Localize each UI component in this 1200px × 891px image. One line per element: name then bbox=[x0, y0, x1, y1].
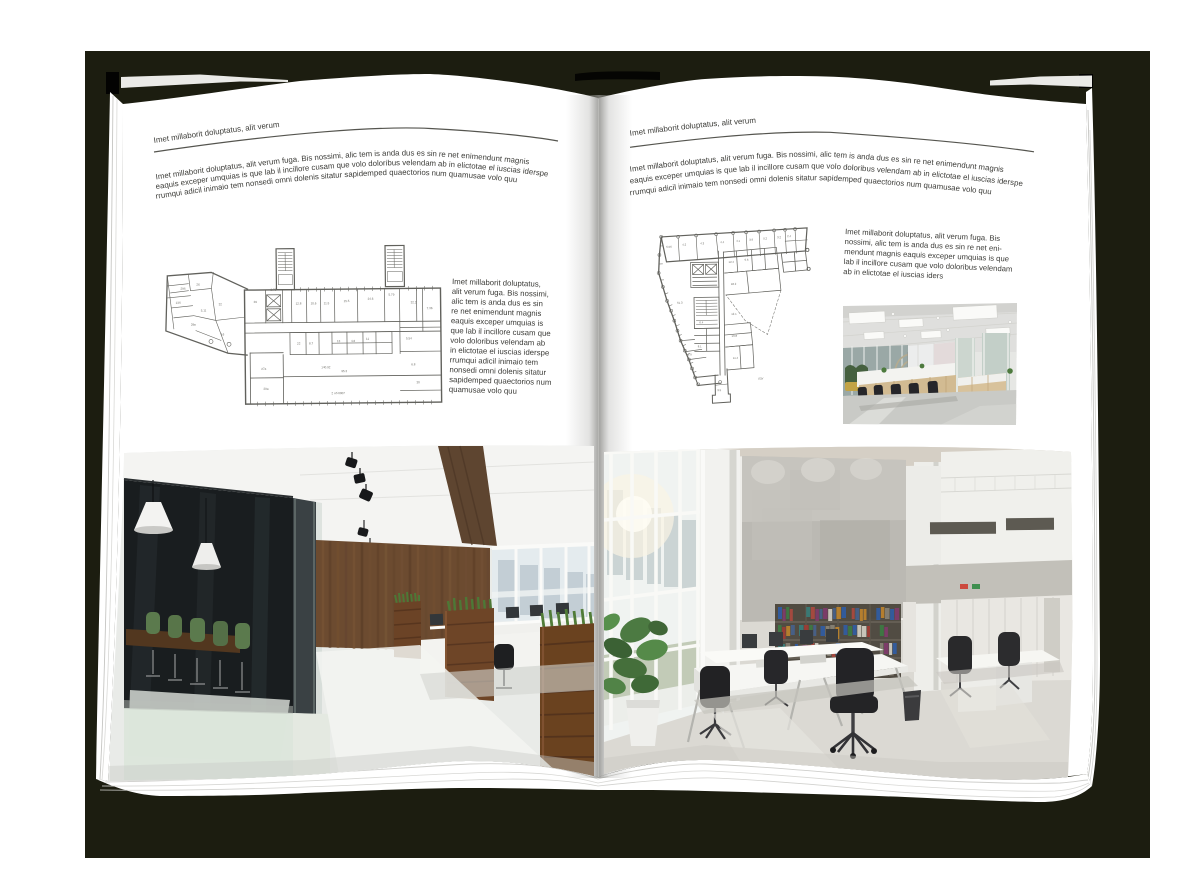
svg-text:5.2: 5.2 bbox=[763, 236, 767, 240]
svg-text:4.2: 4.2 bbox=[682, 243, 686, 247]
svg-text:4.4: 4.4 bbox=[720, 240, 724, 244]
svg-text:22: 22 bbox=[297, 342, 301, 346]
svg-text:95.3: 95.3 bbox=[341, 369, 347, 373]
svg-text:5.54: 5.54 bbox=[406, 336, 412, 340]
svg-text:2.4: 2.4 bbox=[787, 234, 791, 238]
svg-text:11.4: 11.4 bbox=[733, 356, 739, 360]
svg-text:12.8: 12.8 bbox=[296, 302, 302, 306]
svg-text:2 об 0007: 2 об 0007 bbox=[332, 391, 346, 395]
svg-text:5.06: 5.06 bbox=[666, 245, 672, 249]
svg-text:32: 32 bbox=[219, 302, 223, 306]
svg-text:8.1: 8.1 bbox=[698, 344, 702, 348]
svg-text:16: 16 bbox=[221, 332, 225, 336]
svg-text:5.11: 5.11 bbox=[201, 309, 207, 313]
svg-text:11.5: 11.5 bbox=[324, 301, 330, 305]
svg-text:3.9: 3.9 bbox=[749, 238, 753, 242]
svg-text:29: 29 bbox=[254, 300, 258, 304]
svg-text:140.92: 140.92 bbox=[321, 365, 331, 369]
svg-text:4.3: 4.3 bbox=[700, 241, 704, 245]
svg-text:15.5: 15.5 bbox=[344, 299, 350, 303]
svg-text:32.2: 32.2 bbox=[411, 300, 417, 304]
svg-text:26: 26 bbox=[196, 283, 200, 287]
svg-text:29a: 29a bbox=[263, 387, 268, 391]
svg-text:12.4: 12.4 bbox=[728, 260, 734, 264]
svg-text:27a: 27a bbox=[261, 367, 266, 371]
svg-text:13б: 13б bbox=[176, 301, 181, 305]
svg-text:9.9: 9.9 bbox=[688, 353, 692, 357]
svg-text:30: 30 bbox=[416, 380, 420, 384]
svg-text:5.79: 5.79 bbox=[389, 293, 395, 297]
svg-text:ЛЗУ: ЛЗУ bbox=[758, 377, 764, 381]
svg-text:13: 13 bbox=[337, 339, 341, 343]
svg-text:24.6: 24.6 bbox=[368, 297, 374, 301]
svg-text:2.72: 2.72 bbox=[270, 288, 276, 292]
svg-text:12.1: 12.1 bbox=[731, 312, 737, 316]
svg-text:10.6: 10.6 bbox=[311, 301, 317, 305]
svg-text:3.5: 3.5 bbox=[717, 388, 721, 392]
svg-text:7.36: 7.36 bbox=[427, 306, 433, 310]
svg-text:4.1: 4.1 bbox=[736, 239, 740, 243]
svg-text:9.6: 9.6 bbox=[744, 258, 748, 262]
svg-text:11: 11 bbox=[366, 337, 369, 341]
svg-text:29в: 29в bbox=[191, 323, 196, 327]
svg-text:6.8: 6.8 bbox=[411, 362, 416, 366]
svg-text:4.6: 4.6 bbox=[351, 339, 356, 343]
svg-text:6.4: 6.4 bbox=[699, 320, 703, 324]
svg-text:18.2: 18.2 bbox=[731, 282, 737, 286]
svg-text:29б: 29б bbox=[180, 287, 185, 291]
svg-text:8.7: 8.7 bbox=[309, 341, 314, 345]
svg-text:10.8: 10.8 bbox=[732, 334, 738, 338]
svg-text:61.3: 61.3 bbox=[677, 301, 683, 305]
svg-text:3.2: 3.2 bbox=[777, 235, 781, 239]
